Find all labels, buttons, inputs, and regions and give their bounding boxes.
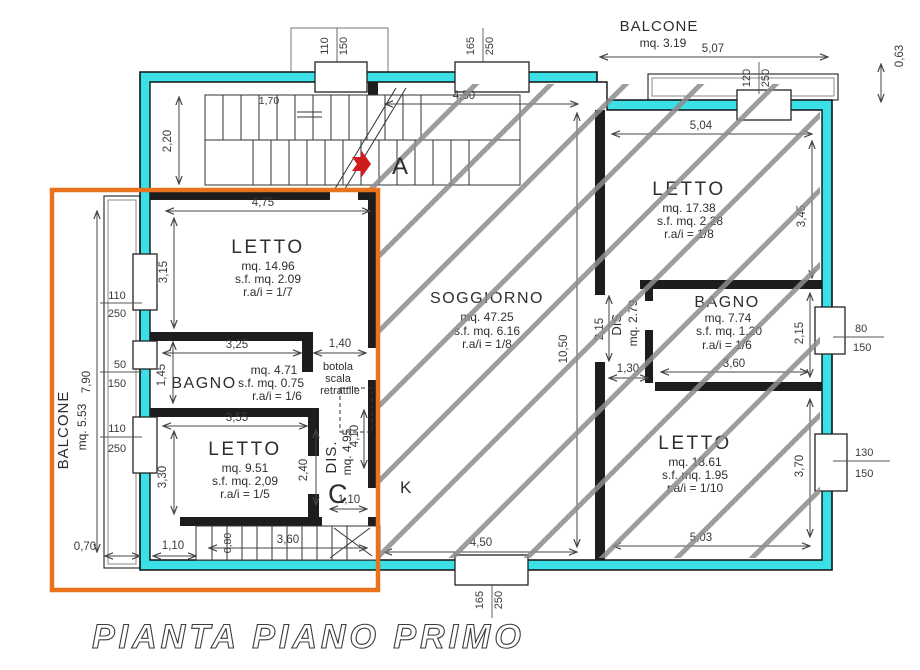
floor-plan-drawing: LETTO mq. 14.96 s.f. mq. 2.09 r.a/i = 1/… (0, 0, 920, 670)
dim-balcone-top-width: 5,07 (702, 43, 724, 55)
marker-c: C (328, 479, 348, 509)
dim-stair-bottom-width: 3,60 (277, 534, 299, 546)
letto-nw-label: LETTO (231, 237, 304, 258)
dim-stair-bottom-left: 1,10 (162, 540, 184, 552)
floor-plan-canvas: LETTO mq. 14.96 s.f. mq. 2.09 r.a/i = 1/… (0, 0, 920, 670)
dim-letto-nw-width: 4,75 (252, 197, 274, 209)
botola-line2: scala (325, 373, 352, 385)
window-right-lower-w: 130 (855, 447, 873, 459)
window-top-right-h: 250 (760, 69, 772, 87)
bagno-e-area: mq. 7.74 (705, 311, 752, 325)
balcone-top-label: BALCONE (620, 18, 699, 35)
botola-line1: botola (323, 361, 354, 373)
dim-soggiorno-height: 10,50 (558, 335, 570, 364)
balcone-top-area: mq. 3.19 (640, 36, 687, 50)
dim-bagno-e-height: 2,15 (794, 322, 806, 344)
dim-balcone-left-height: 7,90 (81, 371, 93, 393)
balcone-left-label: BALCONE (55, 391, 72, 470)
letto-nw-area: mq. 14.96 (241, 259, 295, 273)
letto-sw-label: LETTO (208, 439, 281, 460)
window-right-upper-h: 150 (853, 342, 871, 354)
bagno-w-area: mq. 4.71 (251, 363, 298, 377)
letto-sw-area: mq. 9.51 (222, 461, 269, 475)
dim-balcone-top-depth: 0,63 (894, 45, 906, 67)
bagno-w-label: BAGNO (171, 375, 236, 392)
dim-letto-sw-east: 2,40 (298, 459, 310, 481)
dim-letto-ne-width: 5,04 (690, 120, 713, 132)
dim-letto-nw-height: 3,15 (158, 261, 170, 283)
window-bottom (455, 555, 528, 585)
window-top-center-h: 250 (484, 37, 496, 55)
window-right-lower (815, 434, 847, 491)
dim-bagno-w-width: 3,25 (226, 339, 248, 351)
letto-sw-ra: r.a/i = 1/5 (220, 487, 270, 501)
window-left-lower-h: 250 (108, 443, 126, 455)
window-top-center (455, 62, 529, 92)
window-left-upper-h: 250 (108, 308, 126, 320)
dim-stair-top-height: 2,20 (162, 130, 174, 152)
dim-bagno-w-height: 1,45 (156, 364, 168, 386)
window-left-middle-w: 50 (114, 359, 126, 371)
window-left-lower (133, 417, 157, 473)
soggiorno-ra: r.a/i = 1/8 (462, 337, 512, 351)
letto-nw-ra: r.a/i = 1/7 (243, 285, 293, 299)
window-top-left (315, 62, 367, 92)
bagno-w-ra: r.a/i = 1/6 (252, 389, 302, 403)
window-left-upper-w: 110 (108, 290, 126, 302)
window-left-middle (133, 341, 157, 369)
botola-line3: retrattile (320, 385, 360, 397)
window-left-middle-h: 150 (108, 378, 126, 390)
dim-stair-bottom-tread: 0,80 (222, 533, 234, 554)
letto-nw-sf: s.f. mq. 2.09 (235, 272, 301, 286)
dim-balcone-left-depth: 0,70 (74, 541, 96, 553)
bagno-w-sf: s.f. mq. 0.75 (238, 376, 304, 390)
window-top-left-w: 110 (319, 37, 331, 55)
dim-corridor-width: 1,40 (329, 338, 351, 350)
window-right-upper (815, 307, 845, 354)
window-left-lower-w: 110 (108, 423, 126, 435)
window-right-lower-h: 150 (855, 468, 873, 480)
window-top-left-h: 150 (338, 37, 350, 55)
dim-letto-sw-height: 3,30 (157, 466, 169, 488)
marker-a: A (392, 153, 408, 180)
soggiorno-sf: s.f. mq. 6.16 (454, 324, 520, 338)
dim-stair-top-width: 1,70 (259, 95, 280, 107)
dim-letto-sw-width: 3,55 (226, 412, 248, 424)
window-top-right-w: 120 (741, 69, 753, 87)
balcone-left-area: mq. 5.53 (75, 403, 89, 450)
letto-ne-area: mq. 17.38 (662, 201, 716, 215)
window-bottom-w: 165 (474, 591, 486, 609)
dim-letto-se-height: 3,70 (794, 455, 806, 477)
window-left-upper (133, 254, 157, 310)
letto-se-sf: s.f. mq. 1.95 (662, 468, 728, 482)
letto-sw-sf: s.f. mq. 2,09 (212, 474, 278, 488)
marker-k: K (400, 478, 412, 497)
dis-w-label: DIS. (323, 440, 340, 473)
plan-title: PIANTA PIANO PRIMO (92, 618, 525, 656)
window-top-center-w: 165 (465, 37, 477, 55)
dim-dis-w-height: 4,10 (349, 425, 361, 447)
window-bottom-h: 250 (493, 591, 505, 609)
window-right-upper-w: 80 (855, 323, 867, 335)
